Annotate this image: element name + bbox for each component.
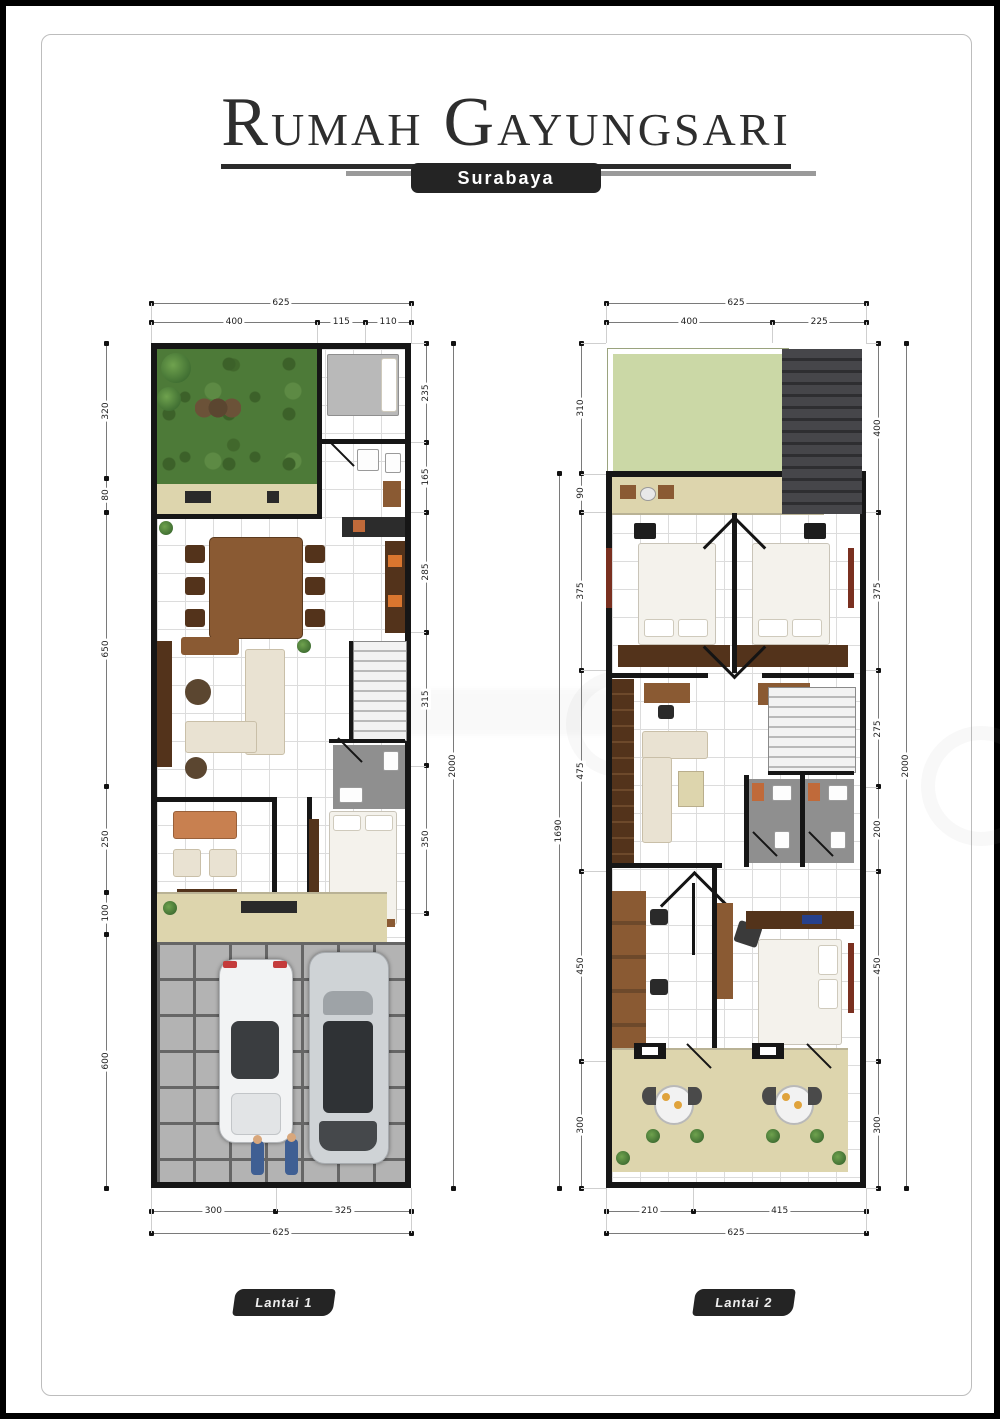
stair-roof: [782, 349, 862, 514]
dimension-label: 90: [576, 485, 586, 500]
dimension-label: 375: [576, 581, 586, 602]
dimension-tick: [104, 784, 109, 789]
dimension-label: 165: [421, 467, 431, 488]
dimension-label: 225: [809, 317, 830, 327]
dimension-label: 400: [224, 317, 245, 327]
dimension-guide: [866, 871, 878, 872]
dimension-guide: [581, 1061, 606, 1062]
dimension-label: 100: [101, 903, 111, 924]
dimension-guide: [581, 1188, 606, 1189]
dimension-label: 210: [639, 1206, 660, 1216]
dimension-guide: [581, 670, 606, 671]
dimension-guide: [581, 871, 606, 872]
dimension-guide: [866, 1061, 878, 1062]
dimension-label: 450: [576, 956, 586, 977]
floor-1-badge: Lantai 1: [232, 1289, 336, 1316]
dimension-guide: [276, 1188, 277, 1211]
dimension-label: 350: [421, 829, 431, 850]
dimension-label: 275: [873, 718, 883, 739]
dimension-guide: [772, 322, 773, 343]
dimension-guide: [151, 322, 152, 343]
dimension-label: 300: [873, 1114, 883, 1135]
dimension-guide: [411, 512, 426, 513]
dimension-tick: [904, 1186, 909, 1191]
dimension-label: 625: [270, 298, 291, 308]
dimension-guide: [411, 632, 426, 633]
dimension-tick: [104, 510, 109, 515]
dimension-line: [151, 1211, 411, 1212]
dimension-label: 285: [421, 562, 431, 583]
dimension-label: 1690: [554, 818, 564, 845]
dimension-guide: [866, 787, 878, 788]
dimension-guide: [606, 1188, 607, 1233]
dimension-tick: [451, 1186, 456, 1191]
dimension-label: 625: [270, 1228, 291, 1238]
dimension-guide: [581, 343, 606, 344]
floor-2-badge: Lantai 2: [692, 1289, 796, 1316]
dimension-label: 325: [333, 1206, 354, 1216]
dimension-label: 600: [101, 1051, 111, 1072]
dimension-guide: [411, 766, 426, 767]
dimension-guide: [866, 1188, 867, 1233]
dimension-guide: [581, 474, 606, 475]
sheet-page: RumahGayungsari Surabaya: [6, 6, 994, 1413]
dimension-label: 250: [101, 829, 111, 850]
dimension-label: 650: [101, 639, 111, 660]
dimension-label: 80: [101, 487, 111, 502]
dimension-label: 375: [873, 581, 883, 602]
dimension-tick: [557, 1186, 562, 1191]
dimension-label: 235: [421, 382, 431, 403]
dimension-label: 625: [725, 298, 746, 308]
dimension-label: 310: [576, 398, 586, 419]
dimension-annotations: 6254001151103003256253208065025010060023…: [6, 6, 994, 1413]
dimension-label: 2000: [448, 752, 458, 779]
dimension-label: 315: [421, 688, 431, 709]
dimension-guide: [866, 512, 878, 513]
dimension-label: 200: [873, 818, 883, 839]
dimension-label: 320: [101, 400, 111, 421]
dimension-label: 300: [576, 1114, 586, 1135]
dimension-label: 110: [378, 317, 399, 327]
dimension-guide: [411, 343, 426, 344]
dimension-label: 2000: [901, 752, 911, 779]
dimension-tick: [104, 932, 109, 937]
dimension-guide: [866, 343, 878, 344]
dimension-tick: [451, 341, 456, 346]
dimension-tick: [104, 476, 109, 481]
dimension-guide: [411, 322, 412, 343]
dimension-guide: [606, 322, 607, 343]
dimension-tick: [104, 341, 109, 346]
dimension-guide: [411, 442, 426, 443]
dimension-tick: [104, 1186, 109, 1191]
dimension-label: 625: [725, 1228, 746, 1238]
dimension-guide: [365, 322, 366, 343]
dimension-label: 115: [331, 317, 352, 327]
dimension-guide: [411, 913, 426, 914]
dimension-label: 400: [873, 417, 883, 438]
dimension-line: [151, 322, 411, 323]
dimension-guide: [693, 1188, 694, 1211]
dimension-guide: [866, 322, 867, 343]
dimension-guide: [151, 1188, 152, 1233]
dimension-tick: [104, 890, 109, 895]
dimension-label: 300: [203, 1206, 224, 1216]
dimension-guide: [866, 670, 878, 671]
dimension-guide: [866, 1188, 878, 1189]
dimension-guide: [317, 322, 318, 343]
dimension-label: 415: [769, 1206, 790, 1216]
dimension-tick: [557, 471, 562, 476]
dimension-label: 400: [679, 317, 700, 327]
dimension-guide: [581, 512, 606, 513]
dimension-guide: [411, 1188, 412, 1233]
dimension-tick: [904, 341, 909, 346]
dimension-label: 475: [576, 760, 586, 781]
dimension-label: 450: [873, 956, 883, 977]
